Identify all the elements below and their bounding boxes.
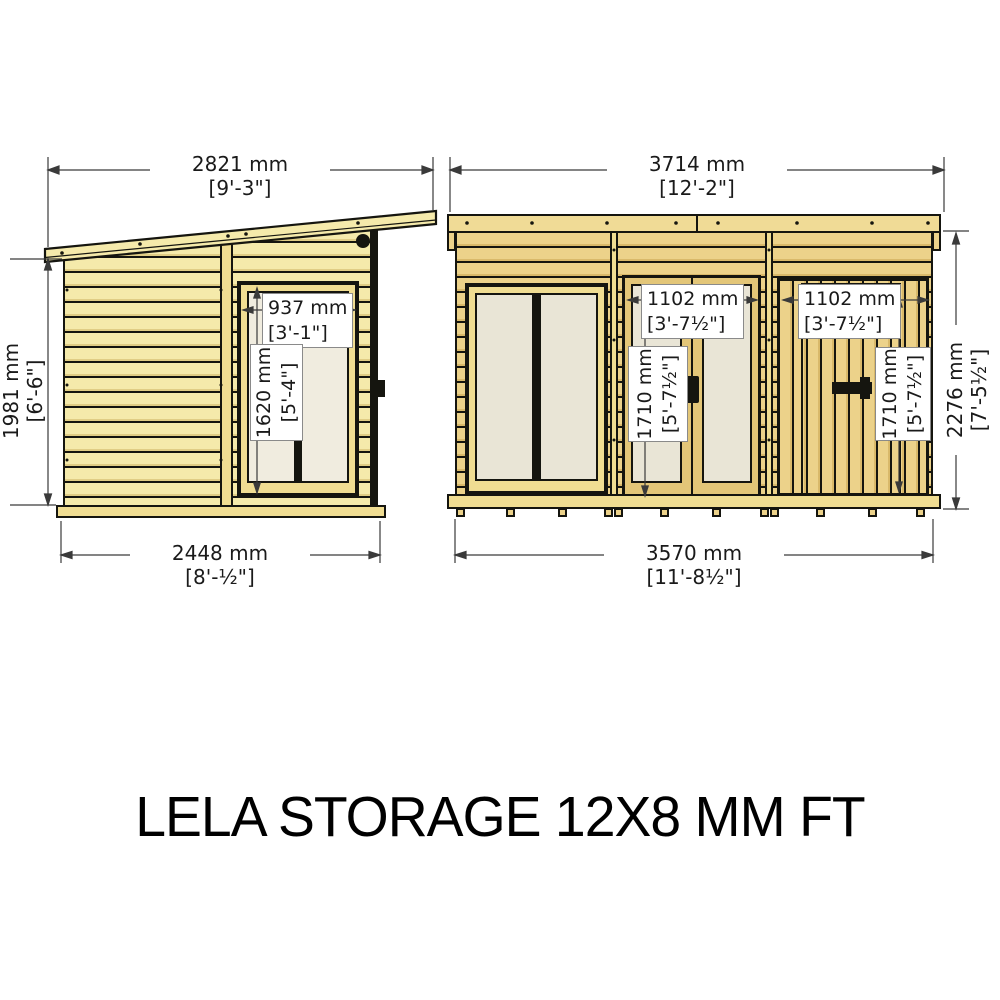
front-window-mullion [532, 295, 541, 479]
dim-label-side-height: 1981 mm [6'-6"] [1, 325, 47, 457]
dim-ftin: [12'-2"] [659, 177, 735, 201]
fascia-right-end-tab [932, 231, 941, 251]
dim-mm: 2448 mm [172, 542, 268, 566]
dim-label-front-roof-width: 3714 mm [12'-2"] [607, 153, 787, 200]
nail-dot [60, 251, 64, 255]
base-foot [916, 508, 925, 517]
side-door-handle [376, 380, 385, 397]
dim-mm: 1981 mm [0, 343, 24, 439]
dim-label-side-roof-width: 2821 mm [9'-3"] [150, 153, 330, 200]
dim-mm: 1620 mm [252, 347, 277, 438]
dim-ftin: [3'-7½"] [804, 312, 882, 337]
base-foot [660, 508, 669, 517]
dim-mm: 1710 mm [878, 348, 903, 439]
dim-ftin: [3'-1"] [268, 321, 328, 346]
dim-ftin: [8'-½"] [185, 566, 255, 590]
dim-ftin: [11'-8½"] [646, 566, 741, 590]
nail-dot [244, 232, 248, 236]
dim-label-store-door-height: 1710 mm [5'-7½"] [875, 347, 931, 441]
dim-mm: 1710 mm [633, 348, 658, 439]
base-foot [760, 508, 769, 517]
dim-ftin: [5'-7½"] [903, 355, 928, 433]
dim-label-side-window-width: 937 mm [3'-1"] [262, 293, 353, 348]
bay-separator-2 [765, 233, 773, 505]
base-foot [604, 508, 613, 517]
dim-mm: 3570 mm [646, 542, 742, 566]
base-foot [770, 508, 779, 517]
dim-mm: 2821 mm [192, 153, 288, 177]
drawing-canvas: 2821 mm [9'-3"] 1981 mm [6'-6"] 2448 mm … [0, 0, 1000, 1000]
base-foot [614, 508, 623, 517]
base-foot [506, 508, 515, 517]
dim-label-door-height: 1710 mm [5'-7½"] [628, 346, 688, 442]
dim-ftin: [5'-7½"] [658, 355, 683, 433]
bay-separator-1 [610, 233, 618, 505]
product-title: LELA STORAGE 12X8 MM FT [15, 784, 985, 850]
dim-label-front-base-width: 3570 mm [11'-8½"] [604, 542, 784, 589]
base-foot [868, 508, 877, 517]
base-foot [558, 508, 567, 517]
nail-dot [226, 234, 230, 238]
store-door-latch [860, 377, 870, 399]
dim-ftin: [3'-7½"] [647, 312, 725, 337]
nail-dot [356, 221, 360, 225]
dim-ftin: [6'-6"] [24, 360, 48, 423]
front-base [447, 494, 941, 509]
dim-ftin: [5'-4"] [277, 363, 302, 423]
base-foot [712, 508, 721, 517]
dim-label-door-width: 1102 mm [3'-7½"] [641, 284, 744, 339]
fascia-left-end-tab [447, 231, 456, 251]
dim-ftin: [7'-5½"] [968, 349, 992, 431]
front-fascia [447, 214, 941, 233]
nail-dot [138, 242, 142, 246]
dim-mm: 1102 mm [647, 287, 738, 312]
dim-ftin: [9'-3"] [209, 177, 272, 201]
side-base [56, 505, 386, 518]
dim-mm: 1102 mm [804, 287, 895, 312]
dim-mm: 2276 mm [944, 342, 968, 438]
base-foot [816, 508, 825, 517]
dim-mm: 3714 mm [649, 153, 745, 177]
dim-label-store-door-width: 1102 mm [3'-7½"] [798, 284, 901, 339]
dim-mm: 937 mm [268, 296, 347, 321]
dim-label-side-base-width: 2448 mm [8'-½"] [130, 542, 310, 589]
front-window-glazing [475, 293, 598, 481]
side-wall-divider [220, 228, 233, 505]
dim-label-front-height: 2276 mm [7'-5½"] [945, 325, 991, 455]
base-foot [456, 508, 465, 517]
front-window [465, 283, 608, 495]
dim-label-side-window-height: 1620 mm [5'-4"] [250, 344, 303, 441]
